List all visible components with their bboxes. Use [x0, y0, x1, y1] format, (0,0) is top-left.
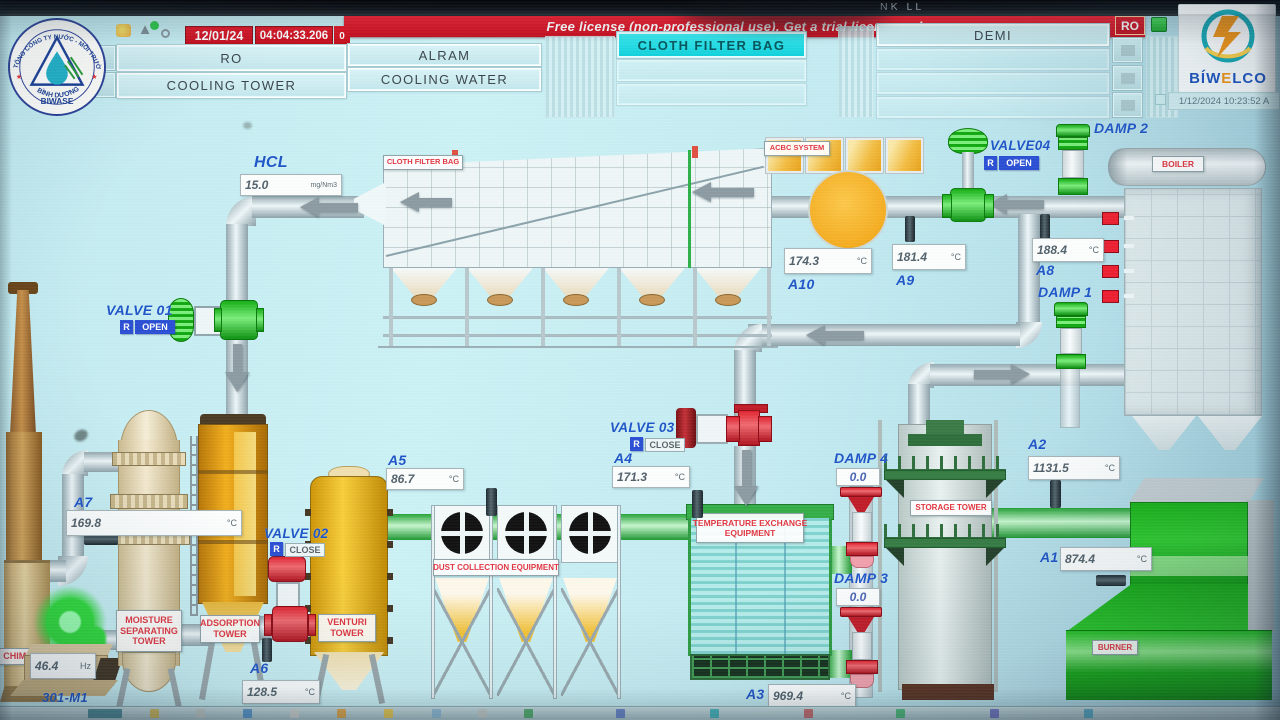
damp2-ribs: [1058, 137, 1088, 150]
flow-arrow-left: [988, 194, 1044, 214]
pipe-storage-horizontal: [930, 364, 1148, 386]
storage-tower-brace: [886, 480, 904, 498]
taskbar-icon[interactable]: [432, 709, 441, 718]
acbc-tank: [808, 170, 888, 250]
flow-arrow-left: [806, 325, 864, 345]
flow-arrow-left: [692, 181, 754, 203]
a9-label: A9: [896, 272, 915, 288]
sensor-probe-a2: [1050, 480, 1061, 508]
a2-readout: 1131.5°C: [1028, 456, 1120, 480]
scada-screen: CHIMNEY 46.4Hz 301-M1 MOISTURESEPARATING…: [0, 0, 1280, 720]
a7-label: A7: [74, 494, 93, 510]
a2-label: A2: [1028, 436, 1047, 452]
valve02-yoke: [276, 582, 300, 608]
svg-text:BIWASE: BIWASE: [41, 96, 74, 106]
nav-button-blank[interactable]: [617, 60, 806, 81]
weather-icon: [116, 24, 131, 37]
valve03-yoke: [696, 414, 728, 444]
nav-button-blank[interactable]: [877, 97, 1109, 118]
flow-arrow-left: [400, 192, 452, 212]
nav-button-cooling-tower[interactable]: COOLING TOWER: [117, 73, 346, 98]
alarm-indicator: [1102, 240, 1119, 253]
a9-readout: 181.4°C: [892, 244, 966, 270]
valve04-body-icon[interactable]: [950, 188, 986, 222]
nav-button-blank[interactable]: [877, 73, 1109, 94]
nav-button-demi[interactable]: DEMI: [877, 24, 1109, 46]
pipe-damp1-drop: [1060, 366, 1080, 428]
baghouse-hopper-tip: [639, 294, 665, 306]
chimney-upper: [10, 290, 36, 435]
a10-label: A10: [788, 276, 815, 292]
a8-label: A8: [1036, 262, 1055, 278]
a7-readout: 169.8°C: [66, 510, 242, 536]
baghouse-ground: [378, 346, 778, 348]
hcl-label: HCL: [254, 154, 288, 172]
damp4-valve-icon[interactable]: [840, 487, 882, 497]
damp4-stem: [852, 512, 872, 542]
baghouse-leg: [693, 268, 697, 346]
alarm-count: 0: [334, 26, 350, 46]
baghouse-hopper-tip: [487, 294, 513, 306]
nav-button-ro[interactable]: RO: [117, 45, 346, 71]
baghouse-leg: [767, 268, 771, 346]
valve02-flange: [264, 614, 272, 636]
temp-exchange-label: TEMPERATURE EXCHANGEEQUIPMENT: [696, 513, 804, 543]
clock-indicator: [1155, 94, 1166, 105]
dust-unit-post: [431, 505, 435, 699]
furnace-hopper: [1132, 416, 1196, 450]
damp2-base: [1058, 178, 1088, 195]
storage-tower-top-slab: [908, 434, 982, 446]
acbc-panel: [846, 138, 883, 173]
indicator-tick: [1124, 294, 1134, 298]
adsorption-tower-label: ADSORPTIONTOWER: [200, 615, 260, 643]
venturi-tower-nubs-right: [387, 494, 393, 644]
a5-readout: 86.7°C: [386, 468, 464, 490]
baghouse-hopper-tip: [715, 294, 741, 306]
dust-unit-post: [617, 505, 621, 699]
valve02-label: VALVE 02: [264, 526, 328, 541]
a1-readout: 874.4°C: [1060, 547, 1152, 571]
sensor-probe-a5: [486, 488, 497, 516]
valve03-r-chip: R: [630, 437, 643, 451]
taskbar-icon[interactable]: [384, 709, 393, 718]
venturi-tower-label: VENTURITOWER: [318, 614, 376, 642]
damp3-readout: 0.0: [836, 588, 880, 606]
moisture-tower-label: MOISTURESEPARATINGTOWER: [116, 610, 182, 652]
panel-texture: [838, 26, 874, 118]
flow-arrow-down: [224, 344, 250, 392]
baghouse-hopper-tip: [411, 294, 437, 306]
valve03-label: VALVE 03: [610, 420, 674, 435]
valve04-state-chip: OPEN: [999, 156, 1039, 170]
dust-unit-brace: [561, 588, 619, 696]
a5-label: A5: [388, 452, 407, 468]
dust-collection-label: DUST COLLECTION EQUIPMENT: [433, 559, 559, 576]
valve01-state-chip: OPEN: [135, 320, 175, 334]
time-display: 04:04:33.206: [255, 26, 333, 46]
circle-icon: [161, 29, 170, 38]
valve01-r-chip: R: [120, 320, 133, 334]
svg-text:★: ★: [91, 73, 97, 81]
tool-button[interactable]: [1113, 66, 1142, 90]
storage-tower-base: [902, 684, 994, 700]
boiler-drum-cap: [1108, 148, 1136, 186]
taskbar-start[interactable]: [88, 709, 122, 718]
chimney-middle: [6, 432, 42, 562]
baghouse-leg: [465, 268, 469, 346]
baghouse-divider: [688, 150, 691, 268]
baghouse-fitting: [692, 146, 698, 158]
baghouse-hopper-tip: [563, 294, 589, 306]
damp3-stem: [852, 632, 872, 660]
damp1-label: DAMP 1: [1038, 284, 1092, 300]
nav-button-cloth-filter-bag[interactable]: CLOTH FILTER BAG: [617, 32, 806, 58]
damp3-label: DAMP 3: [834, 570, 888, 586]
baghouse-leg: [389, 268, 393, 346]
acbc-label: ACBC SYSTEM: [764, 141, 830, 156]
taskbar-icon[interactable]: [243, 709, 252, 718]
alarm-indicator: [1102, 212, 1119, 225]
taskbar-icon[interactable]: [896, 709, 905, 718]
burner-mid-block: [1066, 584, 1248, 632]
nav-button-alram[interactable]: ALRAM: [348, 44, 541, 66]
indicator-tick: [1124, 244, 1134, 248]
a4-label: A4: [614, 450, 633, 466]
valve03-flange: [726, 416, 740, 442]
a8-readout: 188.4°C: [1032, 238, 1104, 262]
photo-speck: [72, 427, 90, 444]
monitor-bezel: [0, 0, 1280, 16]
a4-readout: 171.3°C: [612, 466, 690, 488]
valve04-label: VALVE04: [990, 138, 1050, 153]
a1-label: A1: [1040, 549, 1059, 565]
acbc-panel: [886, 138, 923, 173]
taskbar-icon[interactable]: [290, 709, 299, 718]
taskbar-icon[interactable]: [478, 709, 487, 718]
burner-top-slab: [1128, 478, 1264, 504]
date-display: 12/01/24: [185, 26, 253, 46]
dust-unit-brace: [433, 588, 491, 696]
furnace-body: [1124, 188, 1262, 416]
valve02-body-icon[interactable]: [272, 606, 308, 642]
taskbar-icon[interactable]: [804, 709, 813, 718]
tool-button[interactable]: [1113, 38, 1142, 62]
moisture-tower-flange-2: [110, 494, 188, 509]
taskbar-icon[interactable]: [990, 709, 999, 718]
a3-readout: 969.4°C: [768, 684, 856, 708]
damp3-valve-icon[interactable]: [840, 607, 882, 617]
dust-unit-fan-cross: [524, 512, 529, 554]
dust-unit-post: [489, 505, 493, 699]
valve04-flange: [942, 194, 952, 218]
status-dot-icon: [150, 21, 159, 30]
nav-button-cooling-water[interactable]: COOLING WATER: [348, 68, 541, 91]
sensor-probe-a4: [692, 490, 703, 518]
baghouse-leg: [541, 268, 545, 346]
adsorption-tower-leg: [199, 642, 215, 700]
baghouse-rail: [383, 334, 772, 337]
taskbar-icon[interactable]: [337, 709, 346, 718]
moisture-tower-flange-1: [112, 452, 186, 466]
burner-label: BURNER: [1092, 640, 1138, 655]
a6-readout: 128.5°C: [242, 680, 320, 704]
indicator-tick: [1124, 216, 1134, 220]
baghouse-inlet-cone: [354, 182, 386, 226]
sensor-probe-a9: [905, 216, 915, 242]
pipe-mid-horizontal: [748, 324, 1020, 346]
flow-arrow-right: [974, 364, 1030, 384]
valve03-state-chip: CLOSE: [645, 438, 685, 452]
moisture-tower-leg: [168, 668, 183, 710]
damp4-label: DAMP 4: [834, 450, 888, 466]
damp2-stem: [1062, 150, 1084, 178]
a10-readout: 174.3°C: [784, 248, 872, 274]
baghouse-leg: [617, 268, 621, 346]
hcl-readout: 15.0mg/Nm3: [240, 174, 342, 196]
damp1-cap[interactable]: [1054, 302, 1088, 316]
taskbar-icon[interactable]: [616, 709, 625, 718]
sensor-probe-a1: [1096, 575, 1126, 586]
storage-tower-brace: [886, 548, 904, 566]
furnace-hopper: [1198, 416, 1262, 450]
valve02-sensor-icon: [262, 638, 272, 662]
nav-button-blank[interactable]: [877, 49, 1109, 70]
storage-tower-platform: [884, 538, 1006, 548]
adsorption-tower-band: [198, 470, 268, 474]
burner-right-face: [1246, 500, 1274, 632]
indicator-tick: [1124, 269, 1134, 273]
valve04-r-chip: R: [984, 156, 997, 170]
system-clock-strip: 1/12/2024 10:23:52 A: [1168, 92, 1280, 110]
moisture-tower-leg: [116, 668, 131, 710]
ro-alarm-chip: RO: [1115, 16, 1145, 35]
adsorption-tower-band: [198, 540, 268, 544]
damp2-label: DAMP 2: [1094, 120, 1148, 136]
valve02-r-chip: R: [270, 542, 283, 556]
valve04-stem: [962, 152, 974, 190]
damp4-cap: [850, 556, 874, 568]
biwase-logo: TỔNG CÔNG TY NƯỚC - MÔI TRƯỜNG BÌNH DƯƠN…: [8, 18, 106, 116]
taskbar-icon[interactable]: [150, 709, 159, 718]
taskbar-icon[interactable]: [524, 709, 533, 718]
taskbar-icon[interactable]: [196, 709, 205, 718]
valve04-actuator-icon[interactable]: [948, 128, 988, 154]
a3-label: A3: [746, 686, 765, 702]
damp3-base: [846, 660, 878, 674]
temp-exchange-grid: [690, 654, 830, 680]
valve01-label: VALVE 01: [106, 302, 173, 318]
valve02-flange: [308, 614, 316, 636]
valve01-flange: [214, 308, 222, 332]
dust-unit-post: [553, 505, 557, 699]
valve04-flange: [984, 194, 994, 218]
alarm-indicator: [1102, 290, 1119, 303]
alarm-indicator: [1102, 265, 1119, 278]
fan-id-label: 301-M1: [42, 690, 88, 705]
valve01-flange: [256, 308, 264, 332]
sensor-probe-a8: [1040, 214, 1050, 240]
pipe-green-burner: [992, 508, 1138, 538]
taskbar-icon[interactable]: [1084, 709, 1093, 718]
flow-arrow-left: [300, 196, 358, 218]
a6-label: A6: [250, 660, 269, 676]
baghouse-label: CLOTH FILTER BAG: [383, 155, 463, 170]
bezel-background-text: NK LL: [880, 1, 924, 13]
biwelco-logo: [1192, 8, 1264, 66]
storage-tower-top-box: [926, 420, 964, 434]
storage-tower-label: STORAGE TOWER: [910, 500, 992, 516]
baghouse-rail: [383, 316, 772, 319]
fan-speed-readout: 46.4Hz: [30, 653, 96, 679]
damp2-cap[interactable]: [1056, 124, 1090, 137]
boiler-label: BOILER: [1152, 156, 1204, 172]
status-indicator-green: [1151, 17, 1167, 32]
panel-texture: [545, 36, 615, 118]
valve02-actuator-icon[interactable]: [268, 556, 306, 582]
storage-tower-platform: [884, 470, 1006, 480]
nav-button-blank[interactable]: [617, 84, 806, 105]
taskbar-icon[interactable]: [710, 709, 719, 718]
valve02-state-chip: CLOSE: [285, 543, 325, 557]
biwelco-wordmark: BÍWELCO: [1184, 70, 1272, 87]
flow-arrow-down: [733, 450, 759, 506]
damp1-stem: [1060, 328, 1082, 354]
photo-speck: [243, 122, 252, 129]
dust-unit-fan-cross: [588, 512, 593, 554]
valve03-body-icon[interactable]: [738, 410, 760, 446]
valve03-flange: [758, 416, 772, 442]
dust-unit-brace: [497, 588, 555, 696]
damp1-ribs: [1056, 316, 1086, 328]
damp1-base: [1056, 354, 1086, 369]
tool-button[interactable]: [1113, 93, 1142, 117]
valve01-body-icon[interactable]: [220, 300, 258, 340]
svg-text:★: ★: [16, 73, 22, 81]
damp4-readout: 0.0: [836, 468, 880, 486]
dust-unit-fan-cross: [460, 512, 465, 554]
damp4-base: [846, 542, 878, 556]
